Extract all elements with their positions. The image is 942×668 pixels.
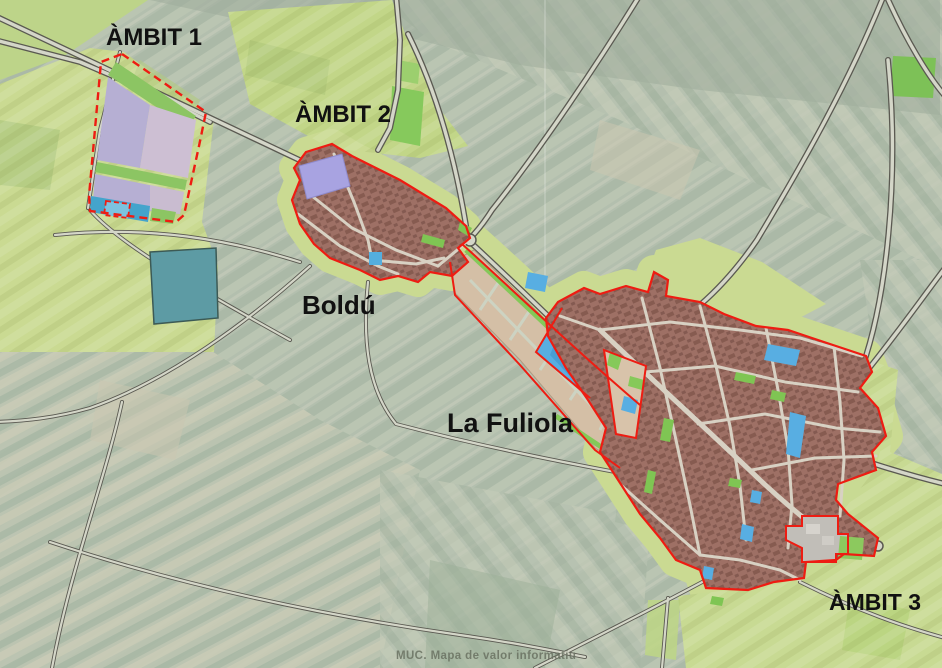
map-canvas[interactable]: ÀMBIT 1 ÀMBIT 2 Boldú La Fuliola ÀMBIT 3…: [0, 0, 942, 668]
label-ambit-1: ÀMBIT 1: [106, 26, 202, 50]
label-la-fuliola: La Fuliola: [447, 410, 573, 437]
label-boldu: Boldú: [302, 292, 376, 318]
label-ambit-2: ÀMBIT 2: [295, 103, 391, 127]
teal-facility-zone: [150, 248, 218, 324]
planning-map: [0, 0, 942, 668]
label-ambit-3: ÀMBIT 3: [829, 591, 921, 614]
map-watermark: MUC. Mapa de valor informatiu: [396, 650, 576, 662]
